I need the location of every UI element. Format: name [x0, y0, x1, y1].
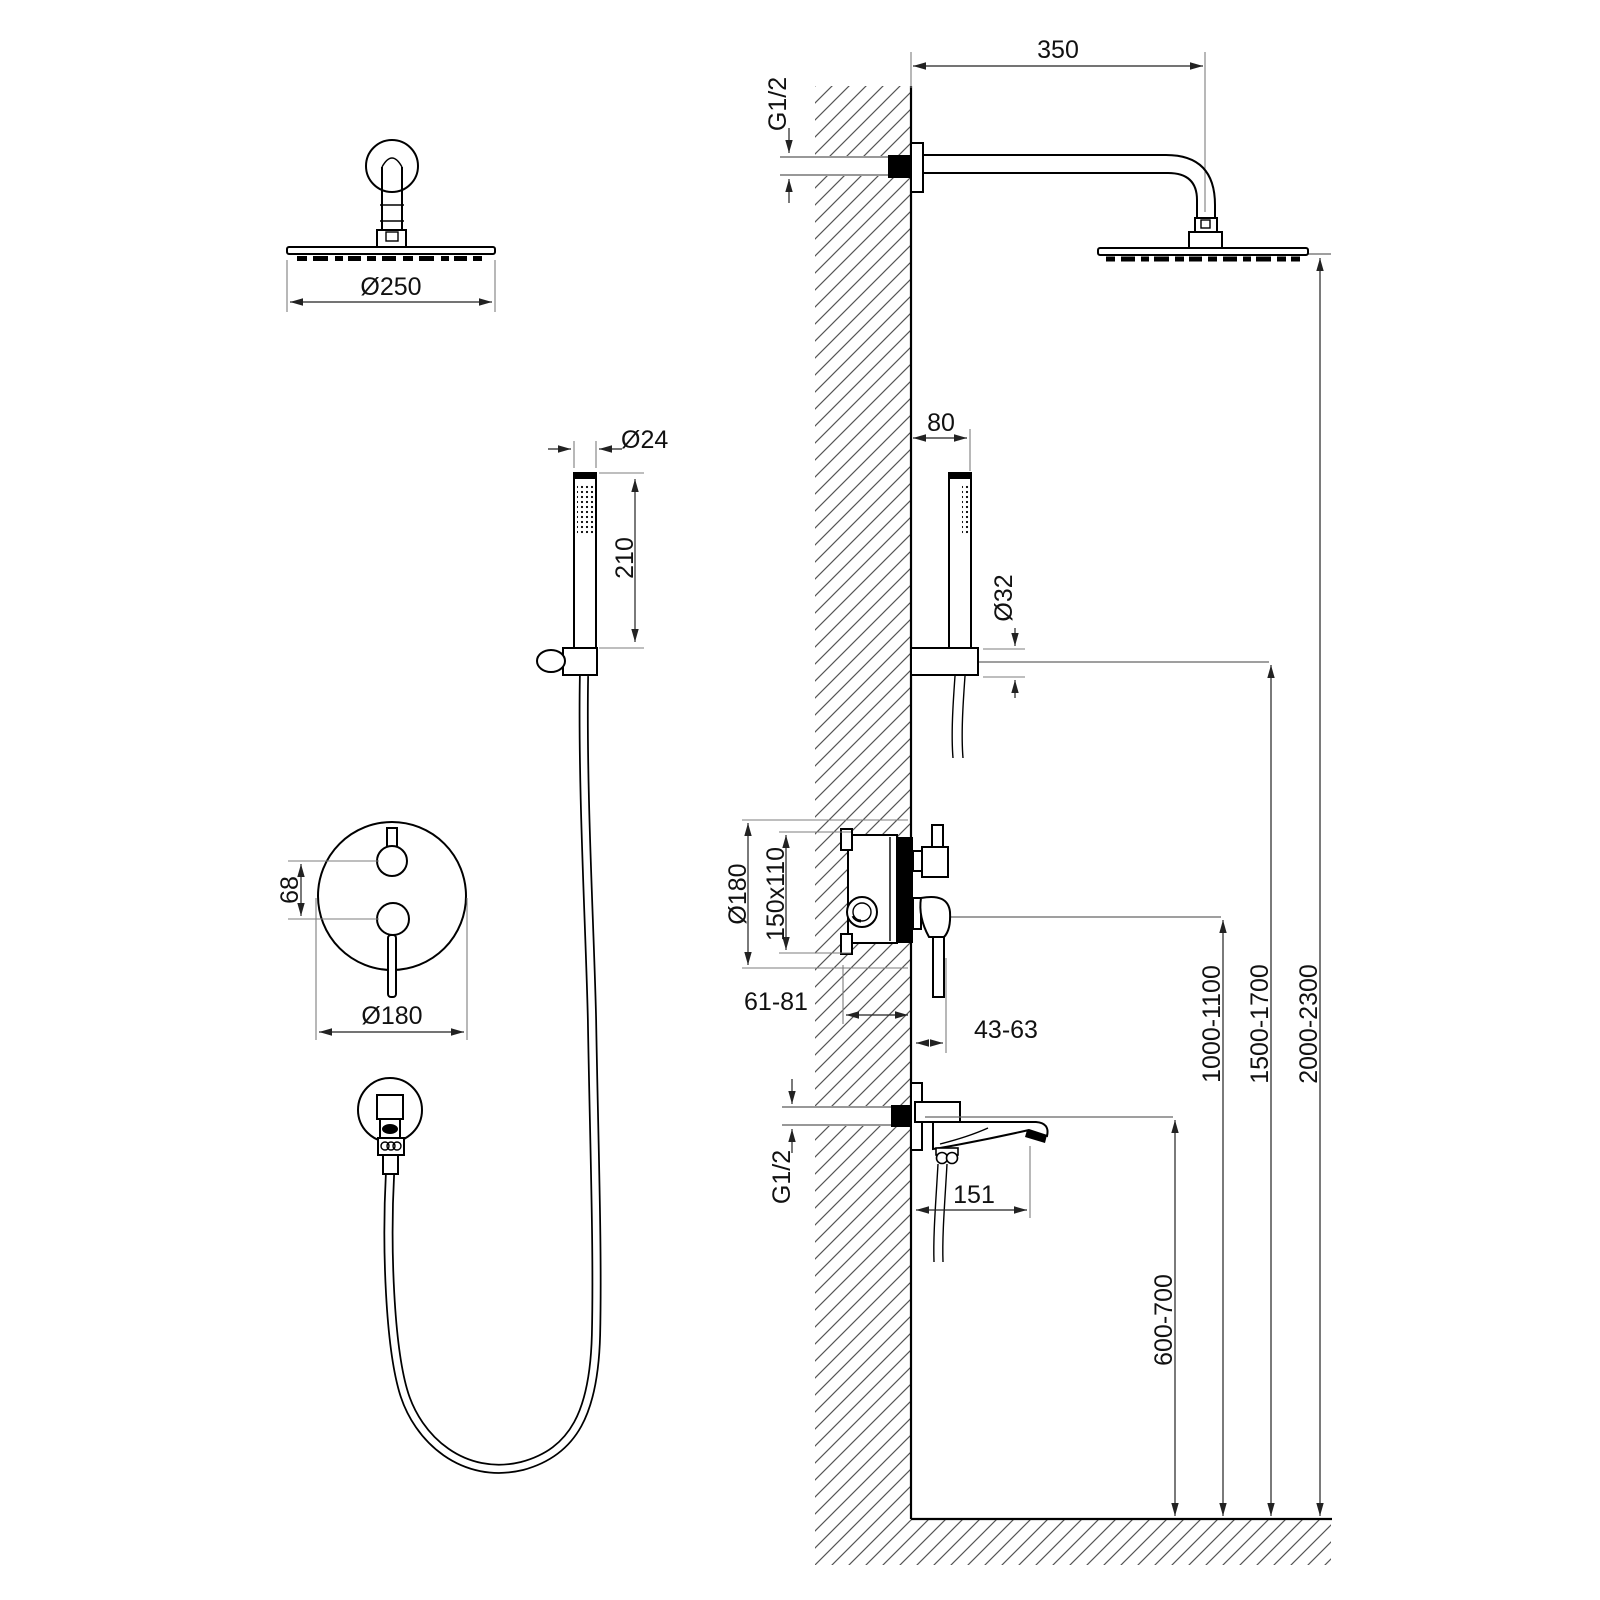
dim-label-hand-shower-offset: 80 [927, 409, 955, 437]
mixer-lever-base [377, 903, 409, 935]
outlet-hose-nipple [383, 1155, 398, 1174]
dim-label-holder-height: 1500-1700 [1246, 964, 1274, 1084]
dim-label-valve-box-size: 150x110 [762, 847, 790, 941]
dim-label-holder-diameter: Ø32 [990, 574, 1018, 621]
spout-hose [934, 1164, 938, 1262]
hand-shower-hose-stub [952, 676, 955, 758]
hand-shower-holder [563, 648, 597, 675]
arm-wall-connection [888, 155, 911, 178]
hand-shower-spray-face [577, 484, 593, 534]
spout-base [915, 1102, 960, 1122]
head-mount [1189, 232, 1222, 248]
shower-system-drawing: Ø250 Ø24 210 [0, 0, 1600, 1600]
dim-spout-thread: G1/2 [768, 1079, 796, 1204]
outlet-nut [378, 1138, 404, 1155]
dim-label-spout-height: 600-700 [1150, 1274, 1178, 1366]
dim-valve-height: 1000-1100 [1198, 920, 1226, 1516]
dim-label-trim-projection: 43-63 [974, 1016, 1038, 1044]
dim-label-arm-thread: G1/2 [764, 77, 792, 131]
dim-label-handle-spacing: 68 [276, 876, 304, 904]
outlet-body [377, 1095, 403, 1119]
dim-label-spout-thread: G1/2 [768, 1150, 796, 1204]
mixer-trim-front-view: 68 Ø180 [276, 822, 467, 1040]
dim-label-arm-projection: 350 [1037, 36, 1079, 64]
dim-hand-shower-diameter: Ø24 [548, 426, 668, 468]
dim-hand-shower-offset: 80 [913, 409, 970, 471]
lever-head-side [920, 897, 950, 937]
dim-head-diameter: Ø250 [287, 260, 495, 312]
hand-shower-side-assembly: 80 Ø32 [911, 409, 1025, 758]
holder-knob [537, 650, 565, 672]
ceiling-escutcheon [366, 140, 418, 192]
lever-handle-side [933, 937, 944, 997]
dim-label-hand-shower-diameter: Ø24 [621, 426, 668, 454]
valve-trim-plate-side [897, 837, 913, 943]
diverter-knob-side [922, 847, 948, 877]
dim-arm-thread: G1/2 [764, 77, 792, 203]
technical-drawing-page: Ø250 Ø24 210 [0, 0, 1600, 1600]
dim-label-head-diameter: Ø250 [360, 273, 421, 301]
dim-label-valve-plate-diameter: Ø180 [724, 863, 752, 924]
dim-label-spout-projection: 151 [953, 1181, 995, 1209]
dim-spout-projection: 151 [916, 1146, 1030, 1218]
floor-section-hatch [911, 1519, 1331, 1565]
valve-inlet-port [847, 897, 877, 927]
wall-holder [911, 648, 978, 675]
dim-label-valve-height: 1000-1100 [1198, 965, 1226, 1083]
diverter-stem-side [932, 825, 943, 847]
head-plate [287, 247, 495, 254]
dim-holder-height: 1500-1700 [1246, 665, 1274, 1516]
mixer-lever-handle [388, 935, 396, 997]
shower-arm [923, 155, 1215, 218]
shower-arm-assembly [888, 52, 1308, 259]
dim-spout-height: 600-700 [1150, 1120, 1178, 1516]
dim-label-hand-shower-length: 210 [611, 537, 639, 579]
arm-escutcheon [911, 143, 923, 192]
dim-arm-projection: 350 [911, 36, 1203, 88]
wall-section-hatch [815, 86, 911, 1565]
dim-label-valve-recess-depth: 61-81 [744, 988, 808, 1016]
dim-head-height: 2000-2300 [1295, 258, 1323, 1516]
installation-side-view: 350 G1/2 80 Ø32 [724, 36, 1332, 1565]
wall-outlet-front-view [358, 1078, 422, 1174]
diverter-knob [377, 846, 407, 876]
rain-head-front-view: Ø250 [287, 140, 495, 312]
dim-holder-diameter: Ø32 [983, 574, 1025, 698]
outlet-opening [382, 1124, 398, 1134]
rain-head-side [1098, 248, 1308, 255]
dim-hand-shower-length: 210 [599, 473, 644, 648]
dim-label-head-height: 2000-2300 [1295, 964, 1323, 1084]
shower-hose [389, 676, 597, 1469]
dim-label-trim-plate-diameter: Ø180 [361, 1002, 422, 1030]
